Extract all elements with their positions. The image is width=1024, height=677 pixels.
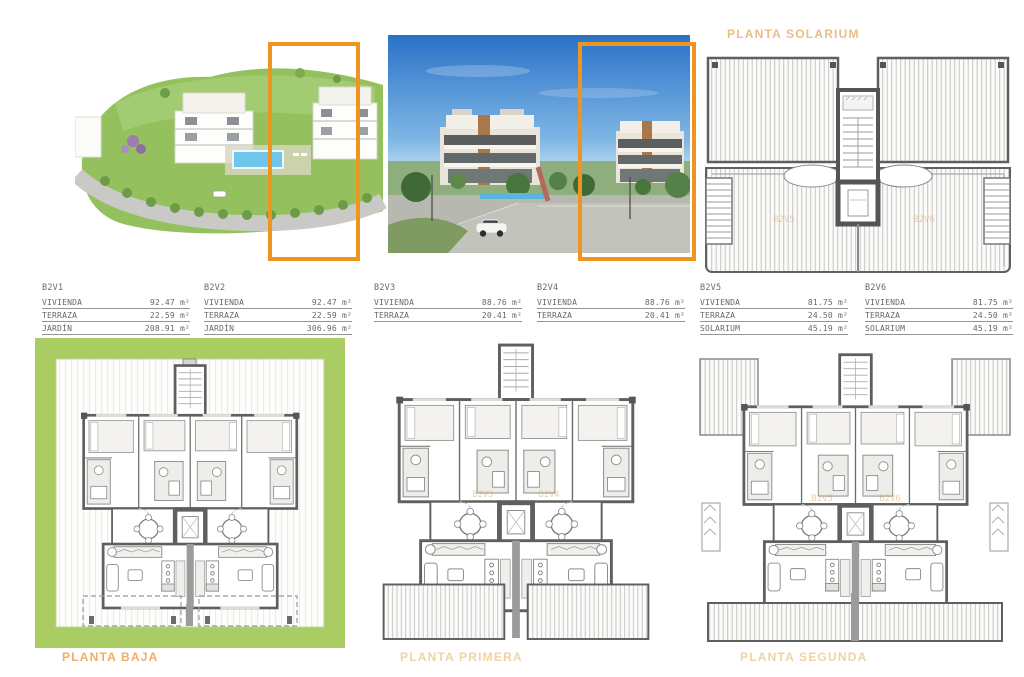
floor-label-segunda: PLANTA SEGUNDA — [740, 650, 867, 664]
unit-id: B2V5 — [700, 283, 848, 293]
plan-unit-label: B2V3 — [472, 490, 493, 500]
photo-pool — [480, 193, 544, 199]
floorplan-segunda: B2V5 B2V6 — [698, 345, 1012, 645]
floorplan-baja — [35, 338, 345, 648]
unit-id: B2V1 — [42, 283, 190, 293]
table-row: VIVIENDA81.75 m² — [700, 296, 848, 309]
table-row: TERRAZA20.41 m² — [374, 309, 522, 322]
table-row: VIVIENDA92.47 m² — [42, 296, 190, 309]
plan-unit-label: B2V6 — [913, 215, 935, 225]
table-row: SOLARIUM45.19 m² — [865, 322, 1013, 335]
plan-unit-label: B2V6 — [879, 494, 901, 504]
highlight-box-photo — [578, 42, 696, 261]
table-row: TERRAZA20.41 m² — [537, 309, 685, 322]
unit-id: B2V2 — [204, 283, 352, 293]
table-row: VIVIENDA92.47 m² — [204, 296, 352, 309]
table-row: JARDÍN306.96 m² — [204, 322, 352, 335]
floorplan-primera: B2V3 B2V4 — [370, 340, 662, 646]
unit-table: B2V6 VIVIENDA81.75 m² TERRAZA24.50 m² SO… — [865, 283, 1013, 335]
table-row: TERRAZA24.50 m² — [700, 309, 848, 322]
table-row: JARDÍN208.91 m² — [42, 322, 190, 335]
table-row: VIVIENDA88.76 m² — [374, 296, 522, 309]
floor-label-baja: PLANTA BAJA — [62, 650, 159, 664]
highlight-box-aerial — [268, 42, 360, 261]
plan-unit-label: B2V5 — [811, 494, 833, 504]
table-row: VIVIENDA88.76 m² — [537, 296, 685, 309]
unit-table: B2V1 VIVIENDA92.47 m² TERRAZA22.59 m² JA… — [42, 283, 190, 335]
unit-id: B2V3 — [374, 283, 522, 293]
brochure-page: BLOQUE 2 — [0, 0, 1024, 677]
plan-unit-label: B2V5 — [773, 215, 795, 225]
unit-id: B2V6 — [865, 283, 1013, 293]
table-row: VIVIENDA81.75 m² — [865, 296, 1013, 309]
floorplan-solarium: B2V5 B2V6 — [702, 50, 1014, 278]
solarium-title: PLANTA SOLARIUM — [727, 27, 860, 41]
table-row: TERRAZA22.59 m² — [204, 309, 352, 322]
unit-table: B2V5 VIVIENDA81.75 m² TERRAZA24.50 m² SO… — [700, 283, 848, 335]
table-row: SOLARIUM45.19 m² — [700, 322, 848, 335]
table-row: TERRAZA24.50 m² — [865, 309, 1013, 322]
car — [213, 191, 226, 197]
unit-table: B2V4 VIVIENDA88.76 m² TERRAZA20.41 m² — [537, 283, 685, 322]
table-row: TERRAZA22.59 m² — [42, 309, 190, 322]
plan-unit-label: B2V4 — [539, 490, 560, 500]
floor-label-primera: PLANTA PRIMERA — [400, 650, 523, 664]
building-partial — [75, 117, 101, 157]
unit-id: B2V4 — [537, 283, 685, 293]
unit-table: B2V2 VIVIENDA92.47 m² TERRAZA22.59 m² JA… — [204, 283, 352, 335]
unit-table: B2V3 VIVIENDA88.76 m² TERRAZA20.41 m² — [374, 283, 522, 322]
